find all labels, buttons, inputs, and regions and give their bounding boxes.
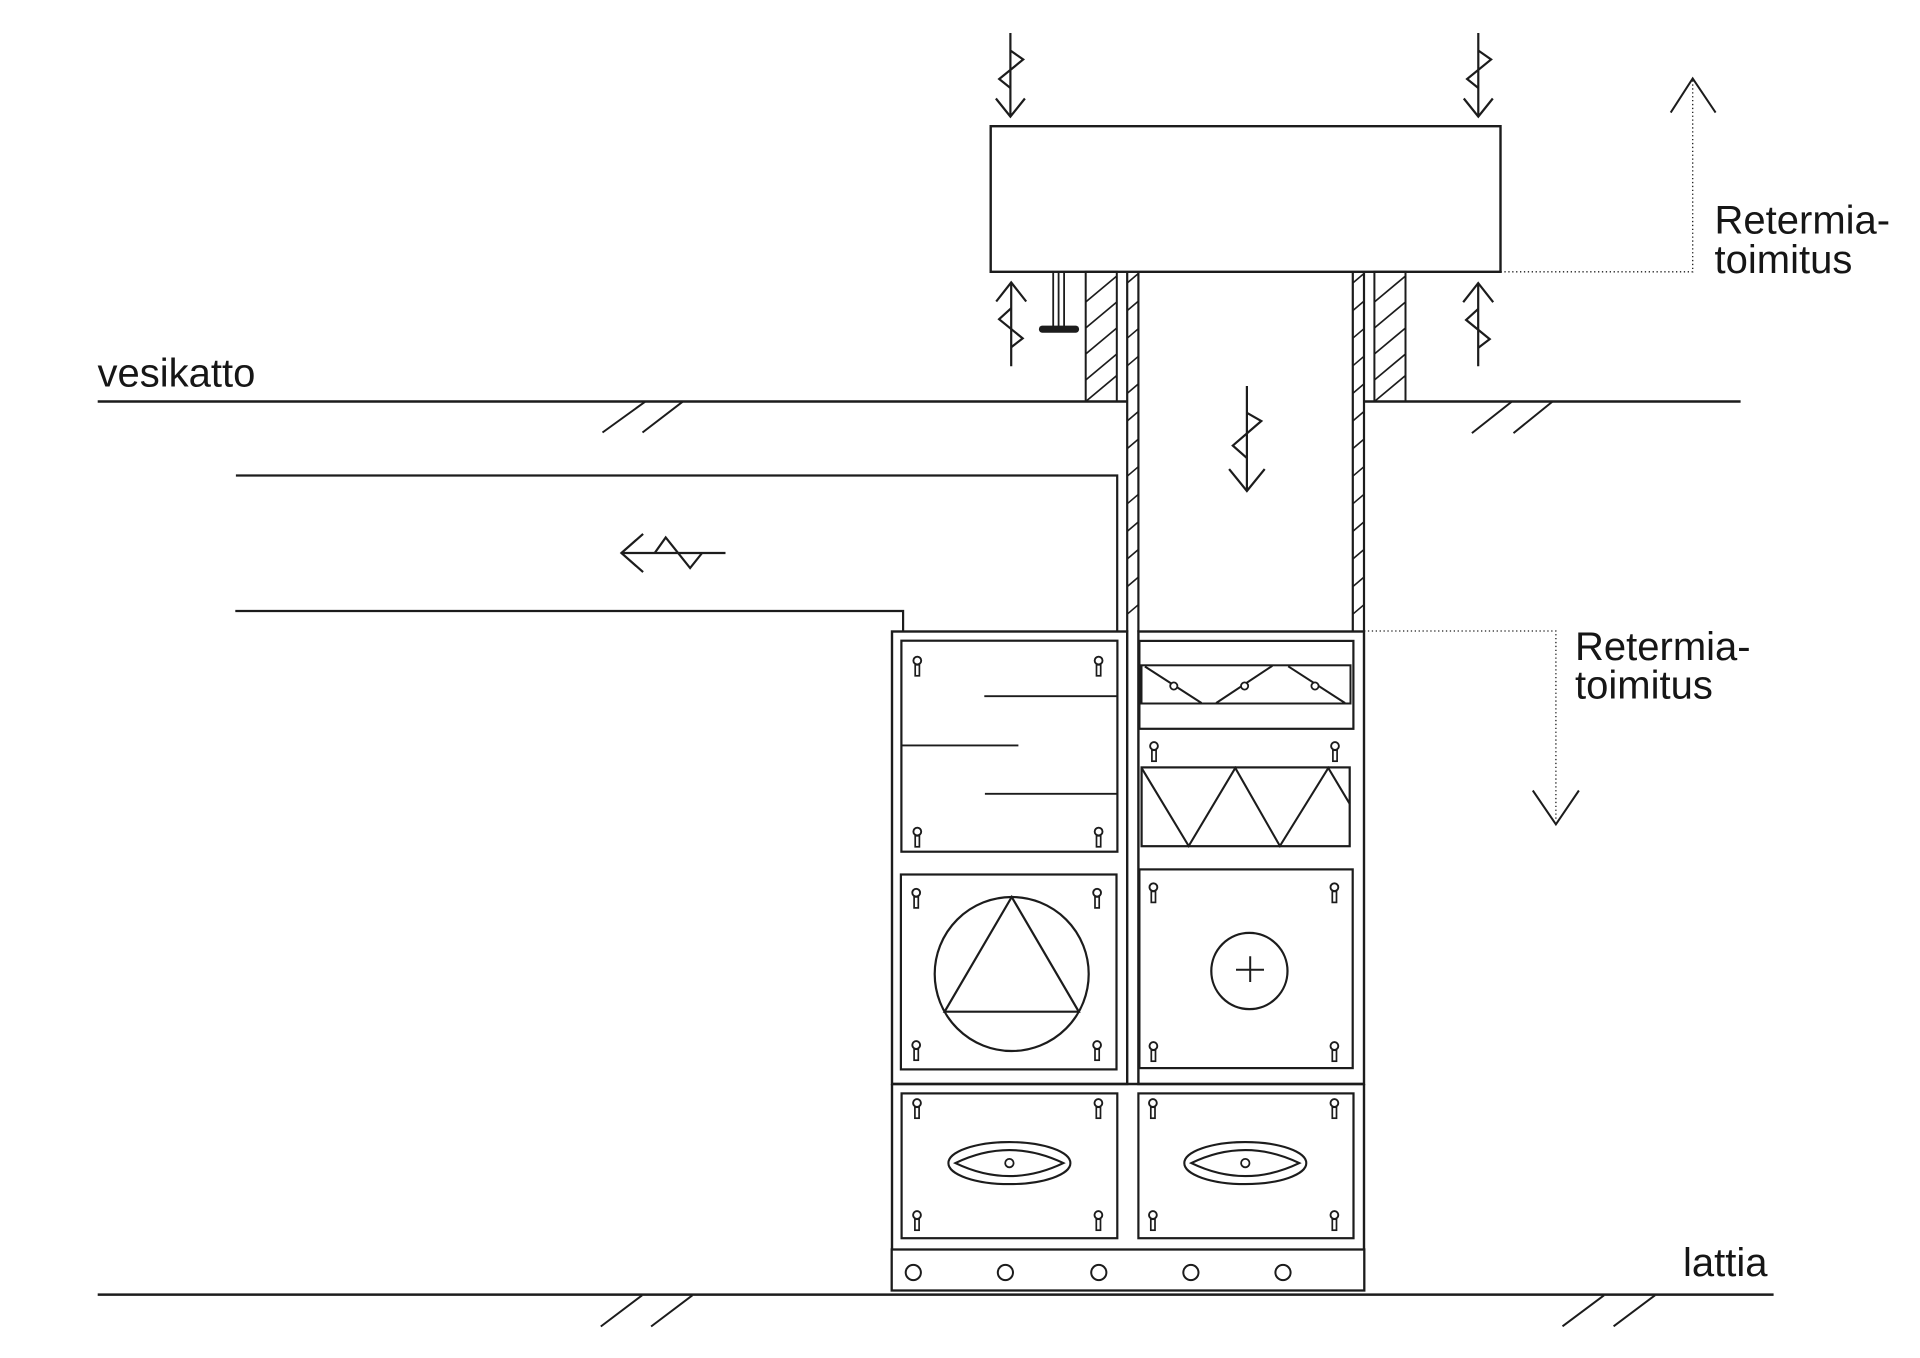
svg-text:lattia: lattia: [1683, 1241, 1768, 1285]
svg-text:Retermia-: Retermia-: [1575, 625, 1751, 669]
svg-text:Retermia-: Retermia-: [1715, 198, 1891, 242]
svg-text:toimitus: toimitus: [1715, 238, 1853, 282]
svg-text:toimitus: toimitus: [1575, 663, 1713, 707]
svg-text:vesikatto: vesikatto: [98, 352, 256, 396]
